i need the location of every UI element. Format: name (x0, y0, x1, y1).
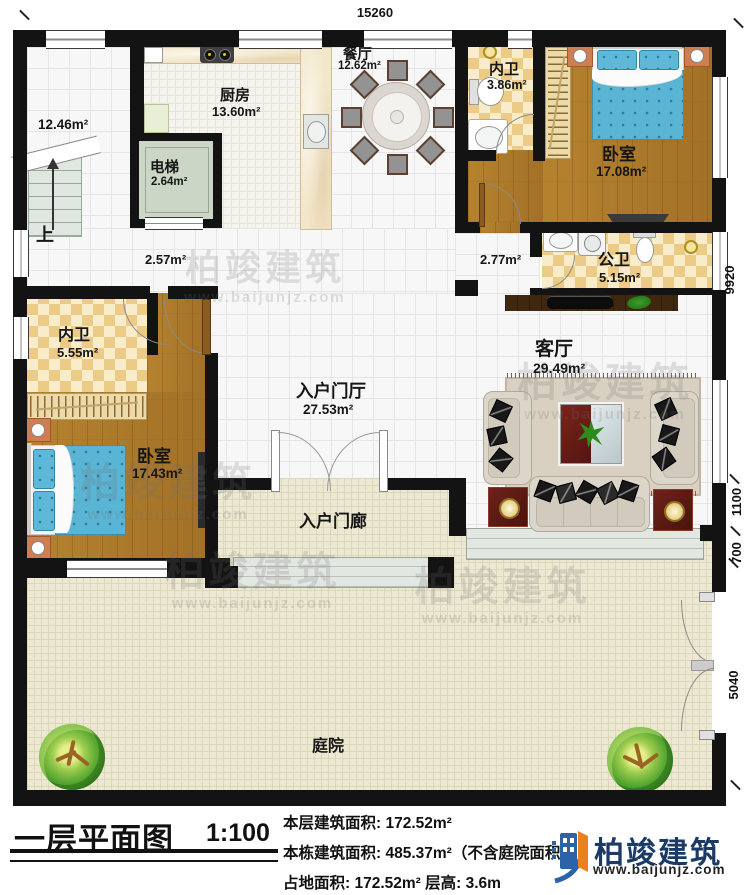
stove (200, 45, 234, 63)
basin-bowl (549, 232, 573, 249)
living-room-label: 客厅 (535, 340, 573, 359)
floor-plan: 15260 9920 1100 700 5040 上 12.46m² 厨房 13… (0, 0, 750, 895)
sofa-pillow (486, 425, 507, 446)
dimension-right-5040: 5040 (727, 662, 741, 708)
tree-branch (72, 751, 90, 766)
bed-pillow (639, 50, 679, 70)
kitchen-area: 13.60m² (212, 105, 260, 118)
public-bath-label: 公卫 (598, 253, 630, 269)
table-lamp (31, 541, 45, 555)
entry-hall-area: 27.53m² (303, 403, 353, 417)
dining-chair (341, 107, 362, 128)
window (46, 30, 105, 49)
wall-entry (218, 478, 273, 490)
entry-door-leaf (379, 430, 388, 492)
dining-area: 12.62m² (338, 61, 381, 73)
ensuite-top-label: 内卫 (489, 62, 519, 77)
coffee-table (560, 404, 622, 464)
dimension-tick (733, 18, 744, 29)
floor-lamp (664, 501, 685, 522)
hall-right-area: 2.77m² (480, 253, 521, 266)
elevator-label: 电梯 (150, 161, 179, 176)
footprint-text: 占地面积: 172.52m² 层高: 3.6m (283, 871, 501, 893)
tree-branch (641, 753, 660, 768)
wall-mid-horizontal (168, 286, 218, 299)
wall-ensuite-wardrobe (533, 30, 545, 155)
window (67, 560, 167, 578)
side-table (653, 489, 693, 531)
bedroom-left-area: 17.43m² (132, 467, 182, 481)
dimension-tick (19, 10, 30, 21)
dining-table-center (390, 110, 404, 124)
nightstand (567, 44, 593, 67)
plant-decor (626, 294, 652, 310)
brand-logo-icon (551, 827, 591, 887)
dimension-right-700: 700 (730, 530, 744, 576)
side-table (488, 487, 528, 527)
wall-tv (530, 288, 712, 295)
table-lamp (690, 49, 704, 63)
wall-top (532, 30, 726, 47)
wall-stair-kitchen (130, 30, 144, 133)
bedroom-right-label: 卧室 (602, 146, 636, 163)
brand-url: www.baijunjz.com (593, 862, 726, 877)
table-lamp (31, 423, 45, 437)
stair-direction-arrow (52, 168, 54, 230)
burner-flame (208, 53, 211, 56)
title-underline-thin (10, 860, 278, 862)
dining-chair (387, 154, 408, 175)
bedroom-right-area: 17.08m² (596, 165, 646, 179)
tree-icon (39, 724, 105, 790)
ensuite-left-area: 5.55m² (57, 346, 98, 359)
ensuite-left-label: 内卫 (58, 328, 90, 344)
living-room-area: 29.49m² (533, 361, 585, 375)
bed-pillow (597, 50, 637, 70)
wall-bedroom-right-bottom (455, 222, 480, 233)
door-leaf-bedroom-right (479, 183, 485, 227)
wall-left (13, 359, 27, 806)
entry-hall-label: 入户门厅 (296, 383, 366, 401)
porch-post-right (428, 557, 454, 588)
tv-cabinet (505, 295, 678, 311)
dimension-right-1100: 1100 (730, 479, 744, 525)
ensuite-top-area: 3.86m² (487, 79, 527, 92)
wall-top (322, 30, 364, 47)
bedroom-left-label: 卧室 (137, 448, 171, 465)
stair-arrow-head (47, 158, 59, 169)
elevator-door (145, 217, 203, 230)
sink-basin (307, 121, 326, 143)
window (239, 30, 322, 49)
pendant-lamp (684, 240, 698, 254)
wall-entry (383, 478, 455, 490)
pendant-lamp (483, 45, 497, 59)
drawing-scale: 1:100 (206, 819, 270, 848)
bed-pillow (33, 491, 55, 531)
stair-hall-area: 12.46m² (38, 118, 88, 132)
wall-living-bottom-right (700, 525, 726, 541)
porch-label: 入户门廊 (299, 513, 367, 530)
table-lamp (573, 49, 587, 63)
window (712, 380, 728, 483)
kitchen-appliance (144, 104, 169, 133)
dimension-tick (730, 780, 741, 791)
wall-bottom (13, 790, 726, 806)
window (13, 317, 29, 359)
door-leaf-bedroom-left (202, 299, 211, 355)
nightstand (684, 44, 710, 67)
window (712, 77, 728, 178)
public-bath-area: 5.15m² (599, 271, 640, 284)
kitchen-label: 厨房 (220, 88, 250, 103)
gate-leaf (699, 730, 715, 740)
dimension-top: 15260 (340, 6, 410, 19)
toilet-bowl (636, 237, 654, 263)
courtyard-label: 庭院 (312, 739, 344, 755)
dining-chair (387, 60, 408, 81)
floor-lamp (499, 498, 520, 519)
hall-left-area: 2.57m² (145, 253, 186, 266)
stair-up-label: 上 (36, 226, 54, 244)
burner-flame (223, 53, 226, 56)
wall-stub (455, 280, 478, 296)
dimension-right-9920: 9920 (723, 257, 737, 303)
fridge (144, 47, 163, 63)
title-underline (10, 849, 278, 853)
double-bed (25, 443, 124, 535)
wall-bedroom-right-bottom (520, 222, 726, 233)
porch-steps (233, 557, 435, 588)
dining-chair (433, 107, 454, 128)
nightstand (25, 536, 51, 560)
wall-public-bath-left (530, 233, 542, 257)
tree-icon (607, 727, 673, 793)
living-room-steps (466, 528, 704, 560)
wall-ensuite-top-bottom (468, 150, 496, 161)
window (364, 30, 452, 49)
window (508, 30, 532, 49)
floor-area-text: 本层建筑面积: 172.52m² (283, 811, 452, 833)
window (13, 230, 29, 277)
wall-top (105, 30, 239, 47)
dining-table (362, 82, 430, 150)
wall-porch-left (205, 478, 218, 566)
wall-right (712, 30, 726, 77)
wall-right (712, 290, 726, 380)
wardrobe (27, 393, 147, 420)
wall-living-left-stub (449, 478, 466, 536)
wall-dining-ensuite (455, 30, 468, 233)
elevator-area: 2.64m² (151, 177, 187, 189)
kitchen-sink (303, 114, 329, 149)
tv (547, 296, 613, 309)
wall-mid-horizontal (13, 286, 150, 299)
nightstand (25, 418, 51, 442)
total-area-text: 本栋建筑面积: 485.37m²（不含庭院面积） (283, 841, 576, 863)
wall-left (13, 30, 27, 230)
bed-pillow (33, 449, 55, 489)
double-bed (592, 44, 682, 138)
mid-hall-floor (27, 228, 455, 293)
washer-drum (584, 235, 601, 252)
